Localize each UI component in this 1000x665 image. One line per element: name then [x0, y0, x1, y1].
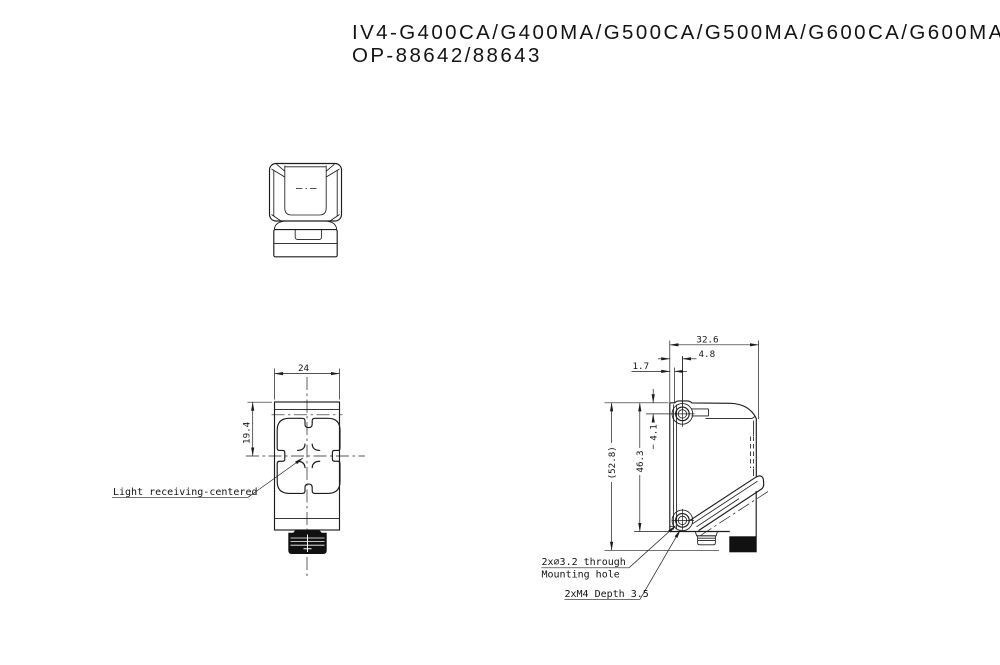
front-view-body-outline [275, 402, 340, 530]
dim-width-value: 24 [298, 363, 310, 374]
front-view: 24 19.4 Light receiving-centered [112, 363, 365, 579]
dim-front-face: 1.7 [632, 361, 688, 372]
side-boss-step [692, 409, 709, 416]
through-hole-label-line2: Mounting hole [542, 569, 620, 580]
dim-hole-from-top-value: 4.1 [649, 424, 660, 441]
top-view-corner-chamfers [272, 164, 340, 177]
side-hidden-lines [751, 437, 754, 469]
dim-receiver-center: 19.4 [242, 402, 272, 456]
dim-hole-from-top: 4.1 [649, 389, 660, 449]
top-view-connector-tab [295, 230, 321, 240]
top-view-body-outline [270, 164, 342, 222]
dim-hole-center-value: 4.8 [699, 349, 716, 360]
side-cable-block [730, 537, 756, 552]
light-receiving-label: Light receiving-centered [113, 487, 258, 498]
through-hole-label-line1: 2x⌀3.2 through [542, 557, 626, 568]
title-line1: IV4-G400CA/G400MA/G500CA/G500MA/G600CA/G… [352, 21, 1000, 44]
side-lens-plate [674, 405, 677, 530]
tap-hole-label: 2xM4 Depth 3.5 [565, 589, 649, 600]
side-cap-seam [706, 417, 755, 419]
top-view-step-fillets [274, 221, 336, 229]
dim-depth-value: 32.6 [696, 334, 718, 345]
dim-overall-height: (52.8) [607, 403, 618, 551]
display-panel-axis [701, 492, 769, 536]
dim-receiver-center-value: 19.4 [242, 421, 253, 444]
dim-overall-height-value: (52.8) [607, 446, 618, 479]
side-connector-neck [695, 532, 717, 536]
top-view-bottom-chamfers [272, 215, 340, 222]
dim-depth: 32.6 [670, 334, 759, 345]
side-top-cap [670, 401, 757, 477]
dimension-drawing: IV4-G400CA/G400MA/G500CA/G500MA/G600CA/G… [0, 0, 1000, 665]
display-panel-seams [693, 481, 758, 527]
dim-front-face-value: 1.7 [633, 361, 650, 372]
side-connector-barrel [698, 536, 716, 545]
top-view-side-walls [274, 170, 337, 216]
dim-body-height: 46.3 [635, 403, 646, 532]
dim-body-height-value: 46.3 [635, 450, 646, 472]
dim-hole-center: 4.8 [658, 349, 715, 360]
drawing-title: IV4-G400CA/G400MA/G500CA/G500MA/G600CA/G… [352, 21, 1000, 67]
top-view-inner-panel [285, 166, 326, 216]
side-view: 32.6 4.8 1.7 4.1 46.3 [542, 334, 769, 600]
title-line2: OP-88642/88643 [352, 44, 542, 67]
top-view [270, 164, 342, 257]
